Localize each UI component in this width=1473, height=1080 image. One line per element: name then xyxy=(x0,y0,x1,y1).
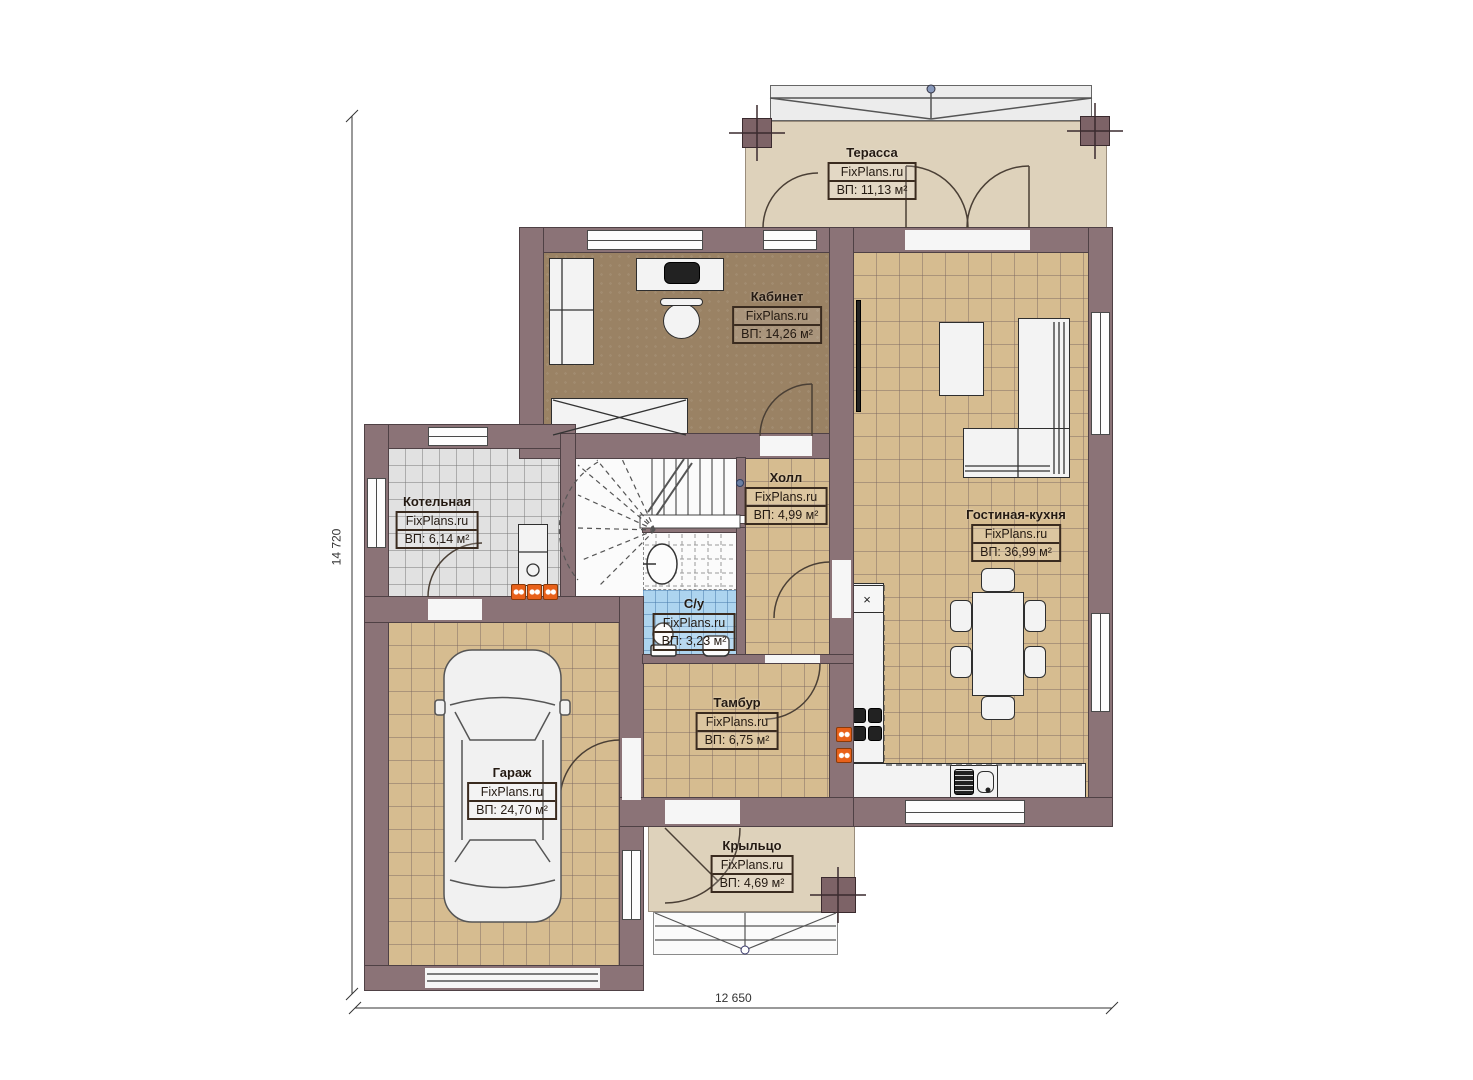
room-info-box: FixPlans.ru ВП: 36,99 м² xyxy=(971,524,1061,562)
terrace-column xyxy=(1081,117,1109,145)
door-opening xyxy=(765,655,820,663)
dining-table xyxy=(972,592,1024,696)
floor-bath-tub-zone xyxy=(643,532,737,590)
room-name: Гостиная-кухня xyxy=(966,507,1066,522)
room-label-garage: Гараж FixPlans.ru ВП: 24,70 м² xyxy=(467,765,557,820)
wall xyxy=(643,524,745,532)
room-area: ВП: 4,99 м² xyxy=(747,507,826,523)
radiator xyxy=(511,584,526,600)
window xyxy=(428,427,488,446)
dimension-height: 14 720 xyxy=(329,529,343,566)
floor-plan: × xyxy=(0,0,1473,1080)
room-label-office: Кабинет FixPlans.ru ВП: 14,26 м² xyxy=(732,289,822,344)
wall xyxy=(561,434,575,597)
room-label-boiler: Котельная FixPlans.ru ВП: 6,14 м² xyxy=(396,494,479,549)
tv xyxy=(856,300,861,412)
room-area: ВП: 14,26 м² xyxy=(734,326,820,342)
porch-steps xyxy=(653,912,838,955)
window xyxy=(763,230,817,250)
garage-door-opening xyxy=(425,968,600,988)
stove-burner xyxy=(868,726,882,741)
room-area: ВП: 3,23 м² xyxy=(655,633,734,649)
dining-chair xyxy=(1024,646,1046,678)
door-opening xyxy=(760,436,812,456)
room-info-box: FixPlans.ru ВП: 4,99 м² xyxy=(745,487,828,525)
room-name: Тамбур xyxy=(696,695,779,710)
watermark: FixPlans.ru xyxy=(655,615,734,633)
wall xyxy=(643,655,853,663)
room-label-porch: Крыльцо FixPlans.ru ВП: 4,69 м² xyxy=(711,838,794,893)
door-opening xyxy=(832,560,851,618)
room-label-terrace: Терасса FixPlans.ru ВП: 11,13 м² xyxy=(828,145,917,200)
room-info-box: FixPlans.ru ВП: 24,70 м² xyxy=(467,782,557,820)
window xyxy=(622,850,641,920)
room-label-hall: Холл FixPlans.ru ВП: 4,99 м² xyxy=(745,470,828,525)
coffee-table xyxy=(939,322,984,396)
floor-terrace xyxy=(745,121,1107,228)
dining-chair xyxy=(981,568,1015,592)
room-name: Крыльцо xyxy=(711,838,794,853)
wall xyxy=(520,228,543,458)
room-info-box: FixPlans.ru ВП: 6,75 м² xyxy=(696,712,779,750)
room-label-bathroom: С/у FixPlans.ru ВП: 3,23 м² xyxy=(653,596,736,651)
room-info-box: FixPlans.ru ВП: 6,14 м² xyxy=(396,511,479,549)
watermark: FixPlans.ru xyxy=(713,857,792,875)
window xyxy=(367,478,386,548)
dining-chair xyxy=(1024,600,1046,632)
room-name: Терасса xyxy=(828,145,917,160)
watermark: FixPlans.ru xyxy=(747,489,826,507)
watermark: FixPlans.ru xyxy=(698,714,777,732)
room-info-box: FixPlans.ru ВП: 14,26 м² xyxy=(732,306,822,344)
boiler xyxy=(518,524,548,586)
window xyxy=(1091,613,1110,712)
room-name: Гараж xyxy=(467,765,557,780)
wall xyxy=(737,528,745,663)
office-sofa xyxy=(549,258,594,365)
living-sofa-horizontal xyxy=(963,428,1070,478)
fridge-mark: × xyxy=(850,585,884,613)
dimension-width: 12 650 xyxy=(715,991,752,1005)
radiator xyxy=(543,584,558,600)
room-area: ВП: 4,69 м² xyxy=(713,875,792,891)
room-info-box: FixPlans.ru ВП: 11,13 м² xyxy=(828,162,917,200)
porch-column xyxy=(822,878,855,912)
radiator xyxy=(836,727,852,742)
stove-burner xyxy=(868,708,882,723)
watermark: FixPlans.ru xyxy=(973,526,1059,544)
radiator xyxy=(527,584,542,600)
window xyxy=(905,800,1025,824)
room-info-box: FixPlans.ru ВП: 3,23 м² xyxy=(653,613,736,651)
office-chair-back xyxy=(660,298,703,306)
watermark: FixPlans.ru xyxy=(398,513,477,531)
front-door-opening xyxy=(665,800,740,824)
room-area: ВП: 6,14 м² xyxy=(398,531,477,547)
wall xyxy=(365,597,643,622)
watermark: FixPlans.ru xyxy=(469,784,555,802)
sink-basin xyxy=(977,771,994,793)
window xyxy=(1091,312,1110,435)
dining-chair xyxy=(981,696,1015,720)
room-name: Кабинет xyxy=(732,289,822,304)
door-opening xyxy=(622,738,641,800)
terrace-column xyxy=(743,119,771,147)
stove-burner xyxy=(852,726,866,741)
room-area: ВП: 6,75 м² xyxy=(698,732,777,748)
room-area: ВП: 11,13 м² xyxy=(830,182,915,198)
dining-chair xyxy=(950,600,972,632)
room-area: ВП: 24,70 м² xyxy=(469,802,555,818)
terrace-door-opening xyxy=(905,230,1030,250)
room-area: ВП: 36,99 м² xyxy=(973,544,1059,560)
radiator xyxy=(836,748,852,763)
room-info-box: FixPlans.ru ВП: 4,69 м² xyxy=(711,855,794,893)
office-printer xyxy=(664,262,700,284)
watermark: FixPlans.ru xyxy=(830,164,915,182)
watermark: FixPlans.ru xyxy=(734,308,820,326)
room-name: С/у xyxy=(653,596,736,611)
room-label-living-kitchen: Гостиная-кухня FixPlans.ru ВП: 36,99 м² xyxy=(966,507,1066,562)
room-name: Холл xyxy=(745,470,828,485)
room-label-vestibule: Тамбур FixPlans.ru ВП: 6,75 м² xyxy=(696,695,779,750)
stove-burner xyxy=(852,708,866,723)
terrace-roof-truss xyxy=(770,85,1092,121)
room-name: Котельная xyxy=(396,494,479,509)
sink-draining-board xyxy=(954,769,974,795)
office-chair xyxy=(663,303,700,339)
door-opening xyxy=(428,599,482,620)
dining-chair xyxy=(950,646,972,678)
window xyxy=(587,230,703,250)
